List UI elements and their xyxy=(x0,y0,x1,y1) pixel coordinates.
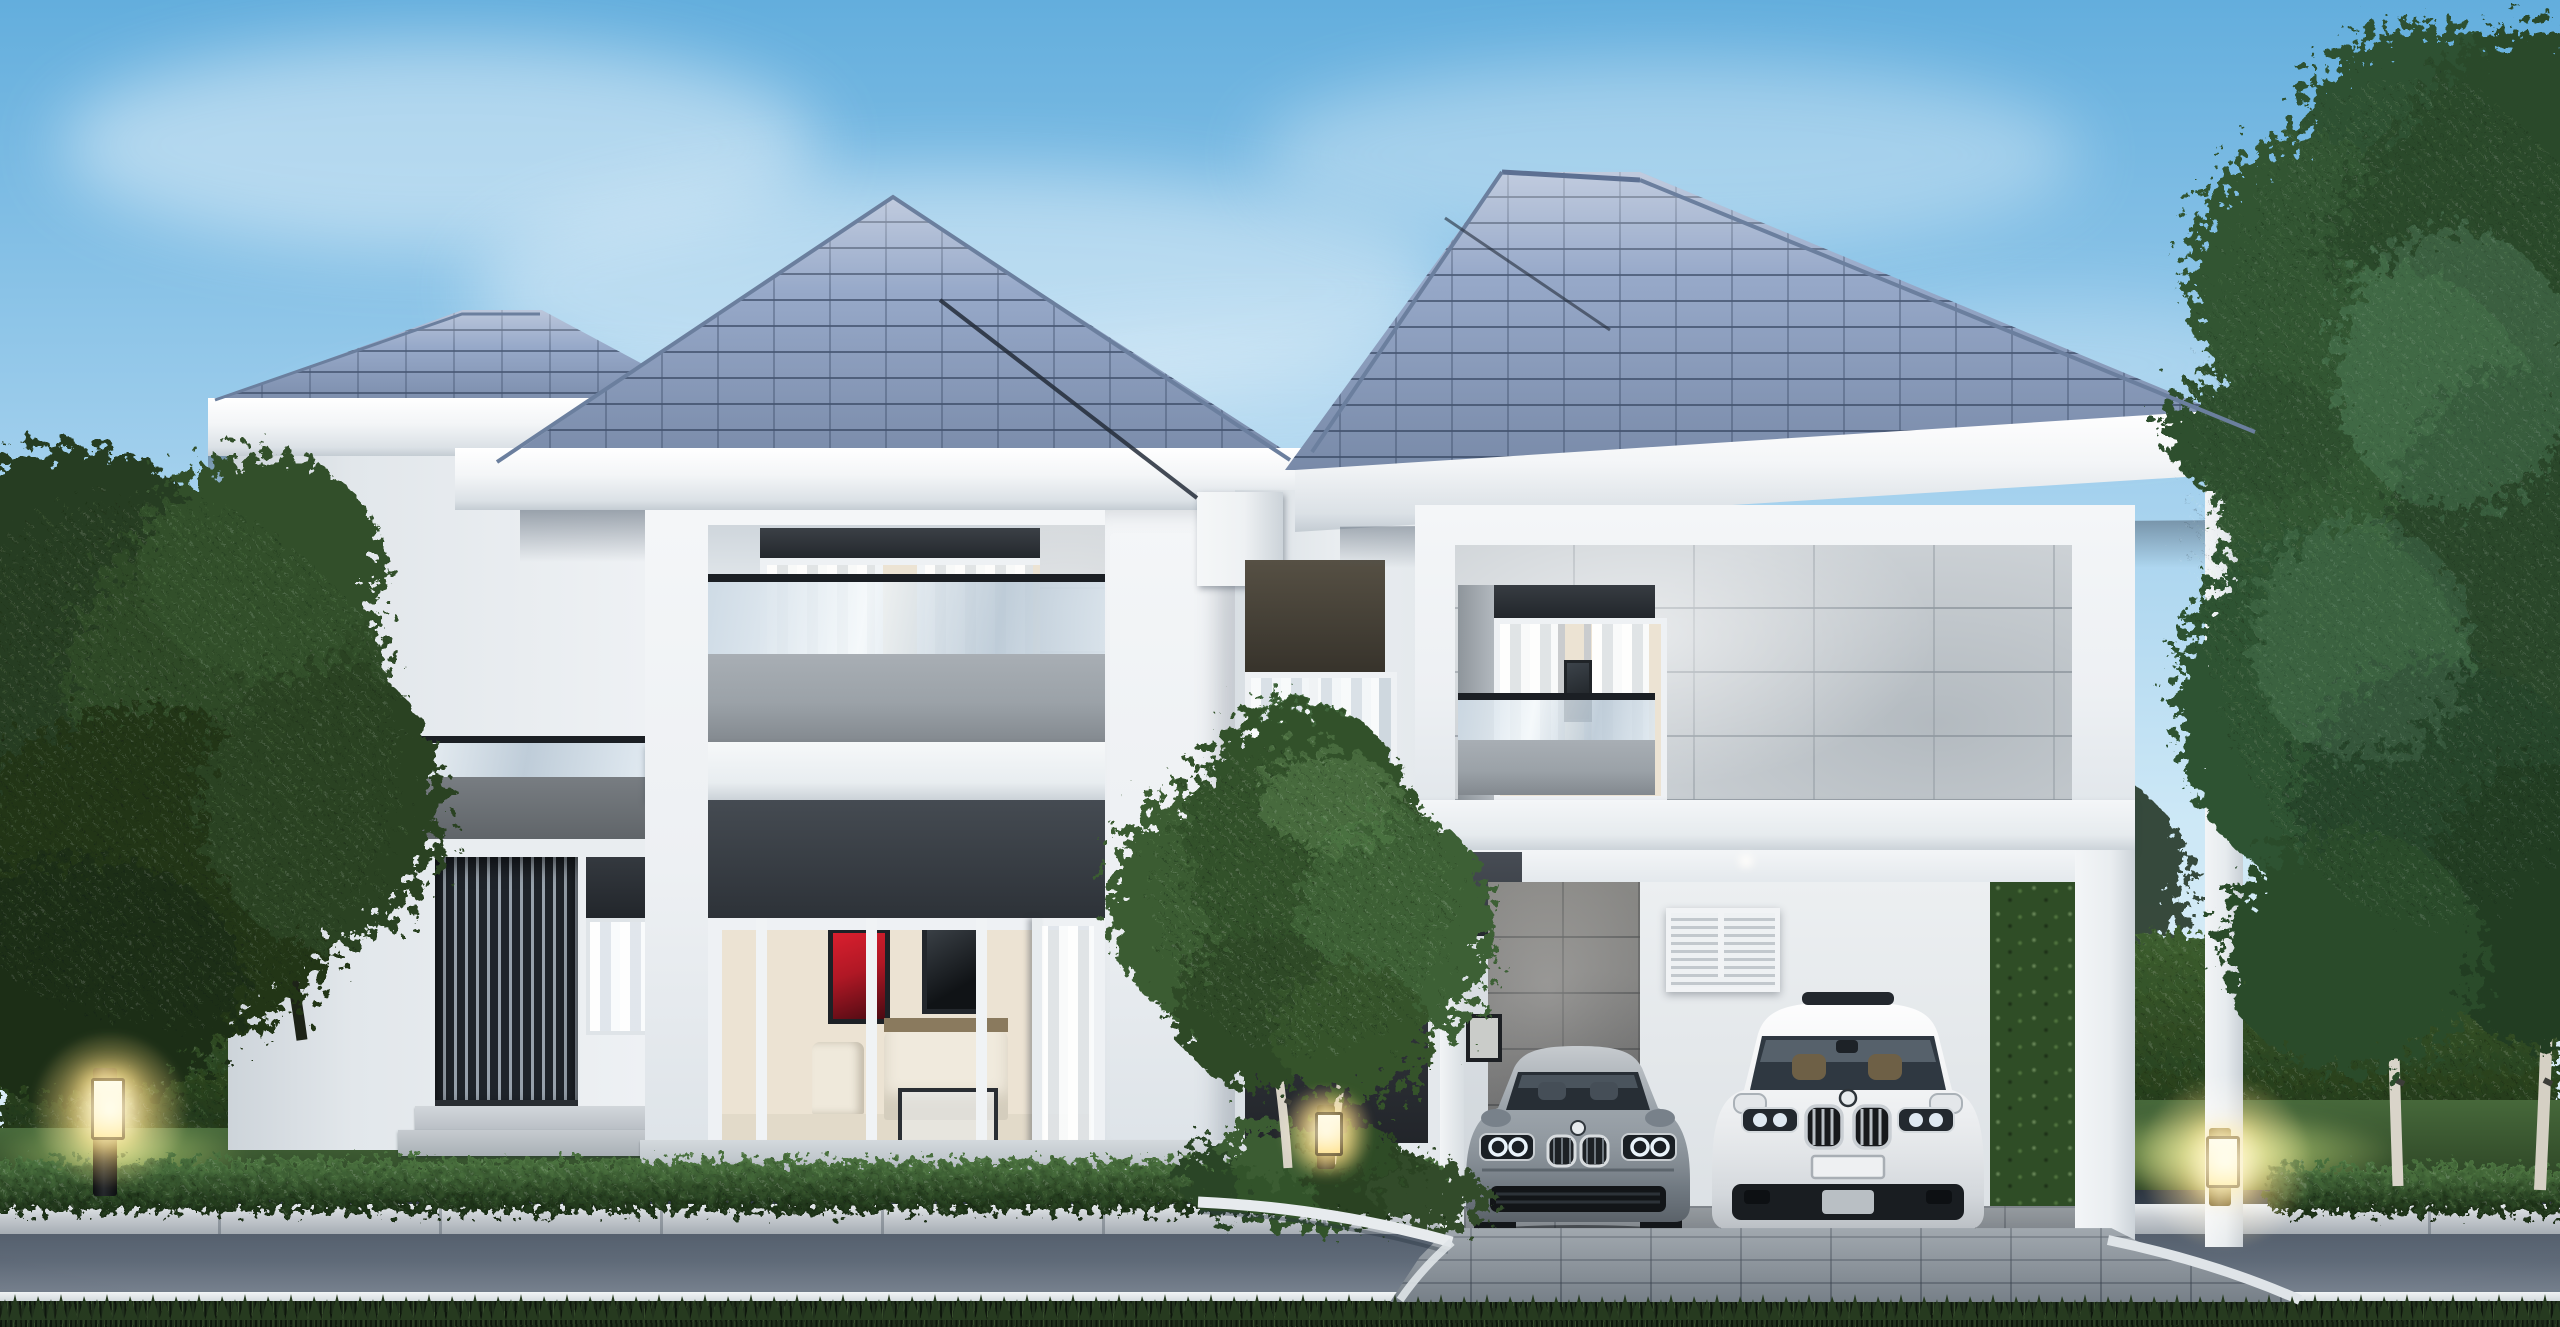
architectural-render-scene xyxy=(0,0,2560,1327)
headlight-lens xyxy=(1909,1113,1923,1127)
vertical-slat-screen xyxy=(435,857,578,1115)
seat-headrest xyxy=(1590,1082,1618,1100)
left-corner-column xyxy=(645,510,708,1162)
carport-downlight xyxy=(1733,852,1759,870)
right-balcony-rail xyxy=(1458,693,1655,700)
terrace-slab xyxy=(640,1140,1240,1162)
headlight-lens xyxy=(1773,1113,1787,1127)
door-mullion xyxy=(976,918,987,1160)
right-balcony-transom xyxy=(1494,585,1655,618)
garden-lamp-left-glow xyxy=(25,1030,195,1190)
seat-headrest xyxy=(1538,1082,1566,1100)
headlight-lens xyxy=(1929,1113,1943,1127)
carport-right-column xyxy=(2075,850,2135,1270)
left-rear-window xyxy=(586,918,653,1035)
skid-plate xyxy=(1822,1190,1874,1214)
right-corner-column xyxy=(1105,510,1235,1162)
middle-bronze-transom xyxy=(1245,560,1385,672)
sunroof xyxy=(1802,992,1894,1005)
fog-slot xyxy=(1744,1190,1770,1204)
headlight xyxy=(1742,1108,1798,1132)
garden-lamp-right-glow xyxy=(2130,1075,2320,1250)
left-rear-window-transom xyxy=(586,857,645,918)
sofa-back-ledge xyxy=(884,1018,1008,1032)
sliding-panel-curtain xyxy=(1038,926,1094,1152)
license-plate-blank xyxy=(1812,1156,1884,1178)
garden-lamp-center-glow xyxy=(1276,1082,1376,1182)
fog-slot xyxy=(1926,1190,1952,1204)
window-mullion xyxy=(1251,764,1379,773)
left-rear-balcony-rail xyxy=(246,736,645,743)
roundel-badge xyxy=(1571,1121,1585,1135)
right-balcony-parapet xyxy=(1458,740,1655,795)
white-suv xyxy=(1700,962,1996,1258)
side-mirror xyxy=(1645,1109,1675,1127)
left-rear-balcony-glass xyxy=(246,743,645,777)
sliding-door-stile xyxy=(1032,918,1042,1160)
seat xyxy=(1792,1054,1826,1080)
door-mullion xyxy=(866,918,877,1160)
terrace-step xyxy=(640,1162,1240,1180)
left-rear-spandrel-panel xyxy=(246,777,645,839)
gray-sedan xyxy=(1452,1008,1704,1248)
headlight-lens xyxy=(1753,1113,1767,1127)
armchair xyxy=(812,1042,864,1114)
left-rear-band xyxy=(246,839,645,857)
lower-intake xyxy=(1490,1186,1666,1212)
right-balcony-glass xyxy=(1458,700,1655,740)
carport-garden-opening xyxy=(1990,882,2075,1240)
windshield-glare xyxy=(1518,1075,1638,1088)
headlight xyxy=(1898,1108,1954,1132)
door-mullion xyxy=(756,918,767,1160)
entry-step-upper xyxy=(415,1106,665,1130)
red-artwork xyxy=(828,928,890,1024)
rearview-mirror xyxy=(1836,1040,1858,1053)
carport-ceiling xyxy=(1462,850,2075,884)
balcony-parapet xyxy=(708,654,1122,742)
balcony-rail xyxy=(708,574,1122,582)
door-frame xyxy=(708,918,722,1160)
middle-tall-window xyxy=(1245,672,1397,880)
living-room-glazing xyxy=(708,918,1105,1160)
left-front-roof xyxy=(495,197,1292,466)
balcony-glass xyxy=(708,582,1122,654)
right-box-bottom-band xyxy=(1415,800,2135,850)
balcony-door-transom xyxy=(760,528,1040,558)
seat xyxy=(1868,1054,1902,1080)
roundel-badge xyxy=(1840,1090,1856,1106)
living-room-transom-panel xyxy=(708,800,1105,918)
side-mirror xyxy=(1481,1109,1511,1127)
